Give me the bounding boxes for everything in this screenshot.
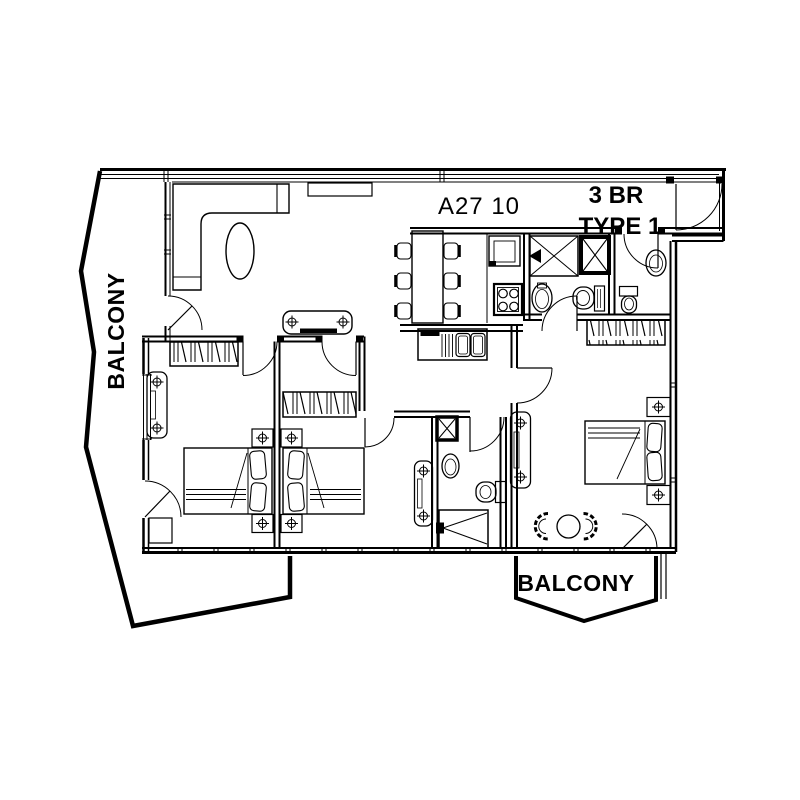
- toilet1: [573, 286, 605, 311]
- bathroom2: [436, 417, 506, 548]
- bedroom2-door: [322, 342, 356, 376]
- dining-area: [396, 231, 460, 323]
- wall-shelf: [308, 183, 372, 196]
- floor-plan-drawing: A27 10 3 BR TYPE 1 BALCONY BALCONY: [0, 0, 800, 800]
- bedroom2-alcove-door: [365, 418, 394, 447]
- sofa-l-shaped: [173, 184, 289, 290]
- kitchen-sink-counter: [418, 329, 487, 360]
- kitchen: [418, 236, 522, 360]
- shower-arrow-icon: [529, 249, 541, 263]
- duct-shaft2: [437, 417, 457, 440]
- armchair-right: [584, 514, 597, 540]
- bathroom2-door: [470, 417, 504, 452]
- unit-type-line2-label: TYPE 1: [579, 213, 662, 240]
- bedroom1: [147, 372, 272, 543]
- balcony-bottom-right-edge: [661, 553, 666, 599]
- dresser-bedroom2: [415, 461, 433, 526]
- master-bedroom-door: [517, 368, 552, 403]
- wall-entry-step: [672, 236, 724, 242]
- wardrobe-bedroom2: [283, 392, 356, 417]
- wc-toilet: [620, 287, 638, 314]
- bed1: [184, 448, 272, 514]
- wc: [620, 250, 667, 313]
- round-side-table: [557, 515, 580, 538]
- bed2: [283, 448, 364, 514]
- coffee-table: [226, 223, 254, 279]
- wardrobe-bedroom1: [170, 342, 238, 366]
- balcony-bottom-label: BALCONY: [517, 570, 634, 596]
- bedroom1-door: [243, 342, 277, 376]
- armchair-left: [535, 514, 548, 540]
- dining-table: [412, 231, 443, 323]
- shower2: [436, 510, 488, 548]
- unit-type-line1-label: 3 BR: [589, 182, 644, 209]
- bedroom2: [283, 448, 433, 526]
- shower1: [529, 236, 578, 276]
- dining-chairs: [396, 243, 460, 319]
- bedroom1-cabinet: [149, 518, 172, 543]
- duct-shaft1: [581, 237, 609, 273]
- balcony-left: [81, 171, 290, 626]
- washbasin1: [532, 283, 552, 312]
- master-balcony-door: [622, 514, 657, 549]
- bathroom1: [529, 236, 609, 312]
- stove: [494, 284, 522, 315]
- floor-plan-page: A27 10 3 BR TYPE 1 BALCONY BALCONY: [0, 0, 800, 800]
- entry-door: [676, 184, 722, 230]
- living-balcony-door: [168, 296, 202, 330]
- wc-washbasin: [646, 250, 666, 276]
- wardrobe-master: [587, 320, 665, 345]
- bathroom1-door: [542, 296, 577, 331]
- sofa-armrests: [173, 184, 277, 277]
- balcony-left-outline: [81, 171, 290, 626]
- unit-number-label: A27 10: [438, 193, 520, 220]
- dresser-master: [511, 412, 531, 488]
- tv-console: [283, 311, 352, 334]
- master-bed: [585, 421, 665, 484]
- balcony-left-label: BALCONY: [103, 272, 129, 389]
- living-room: [173, 183, 372, 334]
- refrigerator: [489, 236, 520, 266]
- washbasin2: [442, 454, 459, 478]
